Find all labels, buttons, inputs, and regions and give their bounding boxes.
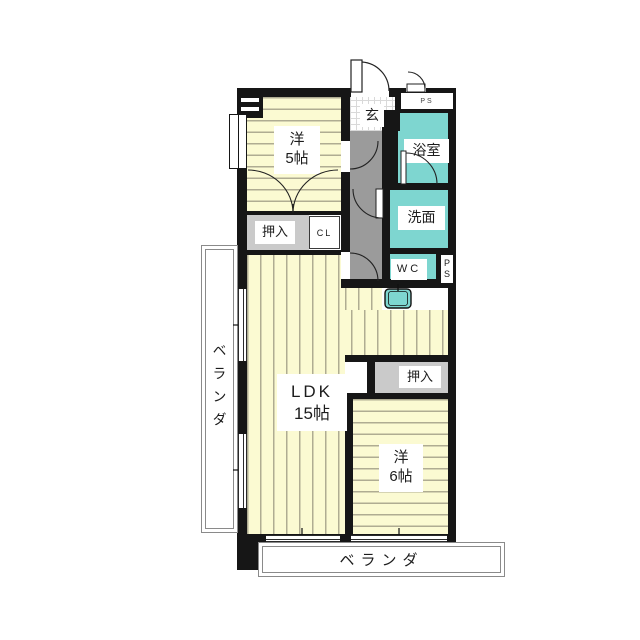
ps-top-label: PS (400, 92, 454, 110)
wall (382, 110, 398, 187)
label-washroom: 洗面 (398, 206, 445, 230)
doorway-ldk-western6 (345, 362, 367, 393)
window (266, 535, 340, 542)
label-bathroom: 浴室 (404, 139, 449, 163)
wall (238, 211, 350, 215)
entrance-door-opening (351, 88, 389, 97)
window (238, 434, 247, 508)
hallway (350, 131, 382, 281)
entrance-door-arc (362, 62, 389, 91)
wall (448, 88, 456, 542)
western5-door-opening (341, 141, 350, 172)
label-western-6: 洋6帖 (379, 444, 423, 492)
wall (382, 187, 390, 288)
window (238, 289, 247, 361)
wall (345, 355, 456, 362)
label-oshiire-right: 押入 (399, 366, 441, 388)
label-genkan: 玄 (360, 104, 384, 127)
wall (388, 183, 456, 190)
veranda-bottom: ベランダ (258, 542, 505, 577)
wall (367, 362, 375, 393)
floorplan-canvas: PS PS CL ベランダ ベランダ 洋5帖 玄 浴室 洗面 WC 押入 LDK… (0, 0, 640, 640)
label-western-5: 洋5帖 (274, 126, 320, 174)
label-ldk: LDK15帖 (277, 374, 347, 431)
veranda-left: ベランダ (201, 245, 238, 533)
room-ldk-extension (345, 288, 382, 310)
window (229, 114, 247, 169)
kitchen-counter (382, 288, 448, 310)
ps-side-label: PS (440, 254, 454, 284)
wall (353, 393, 449, 399)
label-wc: WC (391, 259, 427, 280)
wall (238, 250, 350, 255)
window (351, 535, 447, 542)
ldk-door-opening (341, 252, 350, 279)
room-ldk-band (247, 310, 448, 355)
veranda-left-label: ベランダ (210, 343, 230, 435)
veranda-bottom-label: ベランダ (339, 549, 423, 570)
label-oshiire-top: 押入 (255, 221, 295, 244)
closet-cl: CL (309, 216, 340, 249)
